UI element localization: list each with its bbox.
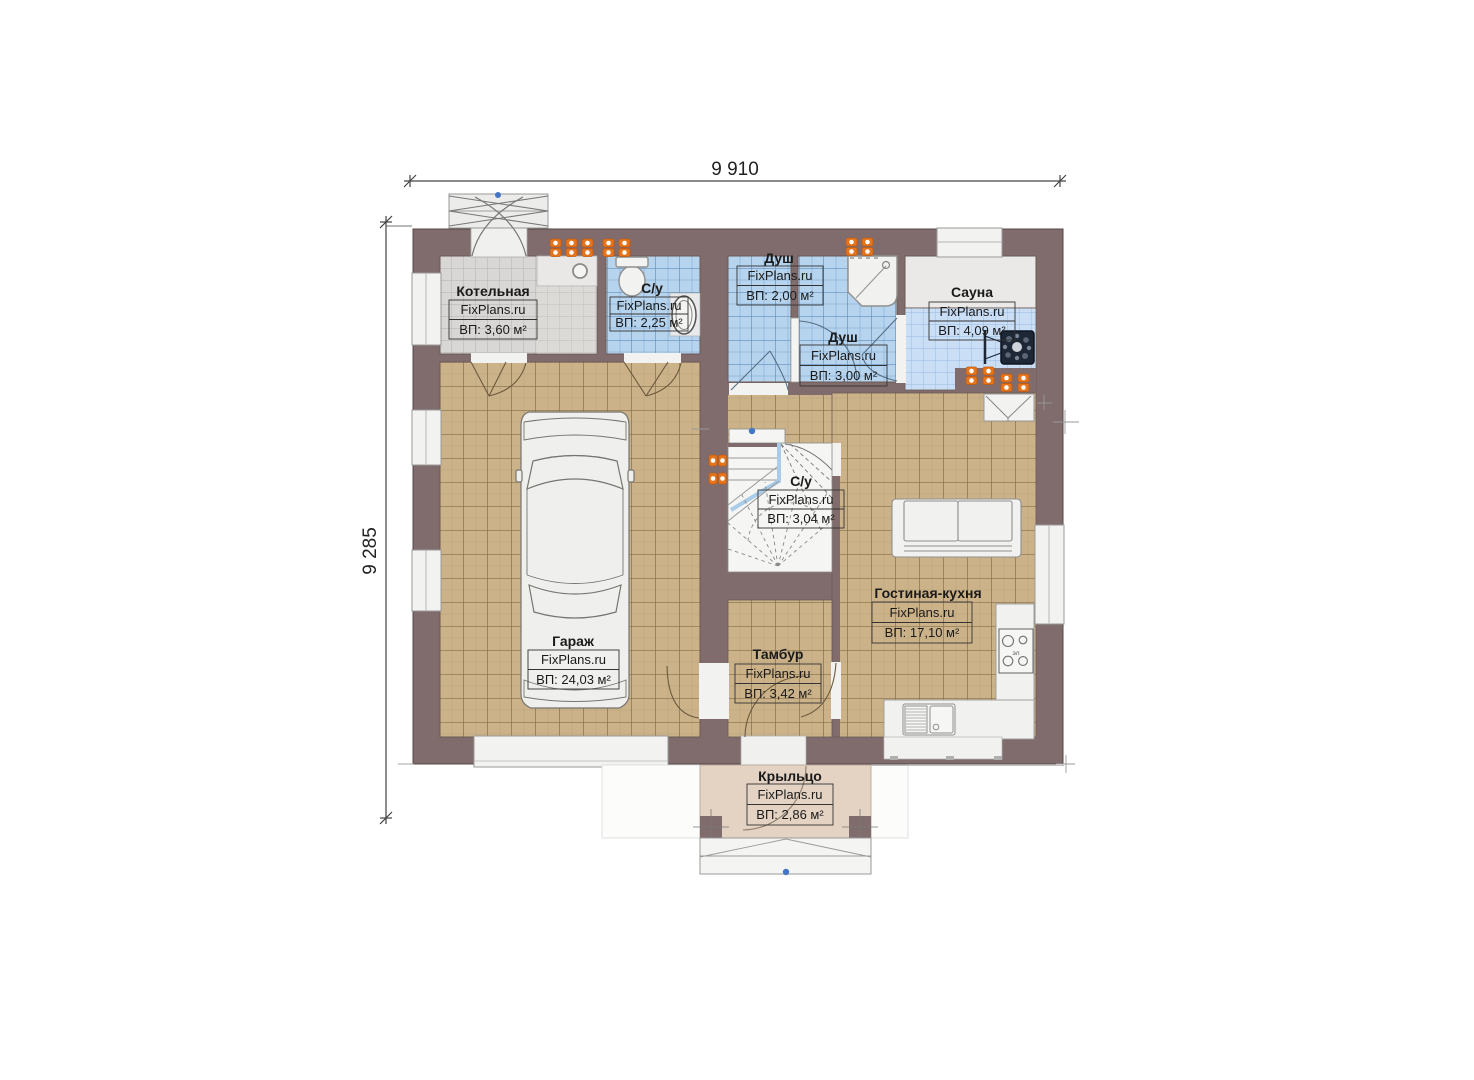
svg-text:эл: эл — [1013, 650, 1020, 657]
svg-text:9 285: 9 285 — [360, 527, 381, 575]
svg-text:ВП: 2,86 м²: ВП: 2,86 м² — [756, 807, 824, 822]
svg-text:Гараж: Гараж — [552, 633, 595, 649]
svg-text:ВП: 2,00 м²: ВП: 2,00 м² — [746, 288, 814, 303]
svg-text:ВП: 24,03 м²: ВП: 24,03 м² — [536, 672, 611, 687]
svg-text:Котельная: Котельная — [456, 283, 529, 299]
svg-text:FixPlans.ru: FixPlans.ru — [616, 298, 681, 313]
svg-text:ВП: 2,25 м²: ВП: 2,25 м² — [615, 315, 683, 330]
svg-text:FixPlans.ru: FixPlans.ru — [747, 268, 812, 283]
svg-text:Крыльцо: Крыльцо — [758, 768, 822, 784]
svg-text:FixPlans.ru: FixPlans.ru — [541, 652, 606, 667]
svg-text:Тамбур: Тамбур — [753, 646, 804, 662]
svg-text:FixPlans.ru: FixPlans.ru — [460, 302, 525, 317]
svg-text:FixPlans.ru: FixPlans.ru — [768, 492, 833, 507]
svg-text:ВП: 3,00 м²: ВП: 3,00 м² — [810, 368, 878, 383]
svg-text:ВП: 17,10 м²: ВП: 17,10 м² — [885, 625, 960, 640]
svg-text:9 910: 9 910 — [711, 159, 759, 180]
svg-text:ВП: 3,04 м²: ВП: 3,04 м² — [767, 511, 835, 526]
svg-text:ВП: 4,09 м²: ВП: 4,09 м² — [938, 323, 1006, 338]
svg-text:FixPlans.ru: FixPlans.ru — [811, 348, 876, 363]
svg-text:FixPlans.ru: FixPlans.ru — [939, 304, 1004, 319]
svg-text:FixPlans.ru: FixPlans.ru — [889, 605, 954, 620]
svg-text:FixPlans.ru: FixPlans.ru — [757, 787, 822, 802]
svg-text:Сауна: Сауна — [951, 284, 993, 300]
svg-text:Душ: Душ — [764, 250, 794, 266]
svg-text:ВП: 3,42 м²: ВП: 3,42 м² — [744, 686, 812, 701]
svg-text:Гостиная-кухня: Гостиная-кухня — [874, 585, 981, 601]
svg-text:FixPlans.ru: FixPlans.ru — [745, 666, 810, 681]
svg-text:С/у: С/у — [790, 473, 812, 489]
svg-text:Душ: Душ — [828, 329, 858, 345]
svg-text:С/у: С/у — [641, 280, 663, 296]
svg-text:ВП: 3,60 м²: ВП: 3,60 м² — [459, 322, 527, 337]
